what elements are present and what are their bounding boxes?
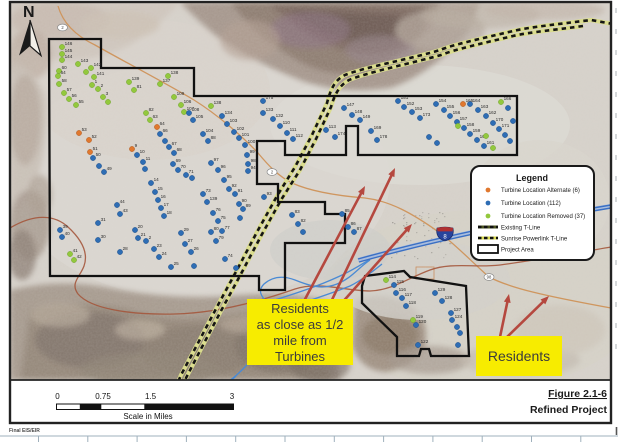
svg-text:69: 69	[176, 158, 182, 163]
svg-text:142: 142	[94, 62, 102, 67]
svg-text:109: 109	[177, 91, 185, 96]
svg-text:122: 122	[421, 339, 429, 344]
svg-text:169: 169	[374, 125, 382, 130]
svg-text:18: 18	[167, 210, 173, 215]
svg-text:23: 23	[157, 243, 163, 248]
svg-text:144: 144	[65, 54, 73, 59]
svg-text:94: 94	[251, 165, 257, 170]
svg-text:87: 87	[357, 226, 363, 231]
svg-text:mile from: mile from	[273, 333, 326, 348]
svg-text:Scale in Miles: Scale in Miles	[123, 412, 172, 421]
svg-text:155: 155	[447, 104, 455, 109]
svg-text:141: 141	[97, 71, 105, 76]
svg-text:15: 15	[158, 186, 164, 191]
svg-text:101: 101	[242, 132, 250, 137]
svg-text:95: 95	[227, 174, 233, 179]
svg-text:148: 148	[355, 109, 363, 114]
svg-text:41: 41	[73, 248, 79, 253]
svg-text:26: 26	[194, 246, 200, 251]
svg-text:73: 73	[206, 188, 212, 193]
svg-text:100: 100	[248, 139, 256, 144]
svg-text:Existing T-Line: Existing T-Line	[501, 226, 541, 232]
svg-text:31: 31	[101, 217, 107, 222]
svg-text:as close as 1/2: as close as 1/2	[257, 317, 344, 332]
svg-text:25: 25	[174, 261, 180, 266]
svg-text:139: 139	[210, 196, 218, 201]
svg-text:51: 51	[93, 146, 99, 151]
svg-text:52: 52	[92, 134, 98, 139]
svg-text:117: 117	[405, 292, 413, 297]
svg-text:63: 63	[153, 114, 159, 119]
svg-text:124: 124	[455, 314, 463, 319]
svg-text:81: 81	[137, 84, 143, 89]
svg-text:161: 161	[487, 140, 495, 145]
svg-text:166: 166	[504, 96, 512, 101]
svg-text:159: 159	[473, 128, 481, 133]
svg-text:118: 118	[409, 300, 417, 305]
svg-text:164: 164	[473, 98, 481, 103]
svg-text:99: 99	[250, 149, 256, 154]
svg-text:115: 115	[397, 279, 405, 284]
svg-text:29: 29	[184, 227, 190, 232]
svg-text:146: 146	[65, 41, 73, 46]
svg-text:175: 175	[266, 95, 274, 100]
svg-text:21: 21	[141, 232, 147, 237]
svg-text:16: 16	[161, 194, 167, 199]
svg-text:83: 83	[295, 209, 301, 214]
svg-text:127: 127	[454, 307, 462, 312]
svg-text:56: 56	[72, 93, 78, 98]
svg-text:N: N	[23, 4, 35, 21]
svg-text:17: 17	[164, 202, 170, 207]
svg-text:9: 9	[135, 143, 138, 148]
svg-text:88: 88	[211, 135, 217, 140]
svg-text:43: 43	[123, 208, 129, 213]
svg-text:158: 158	[467, 122, 475, 127]
svg-text:67: 67	[172, 141, 178, 146]
svg-text:96: 96	[221, 164, 227, 169]
svg-text:10: 10	[140, 149, 146, 154]
svg-text:70: 70	[181, 164, 187, 169]
svg-text:74: 74	[228, 253, 234, 258]
svg-text:82: 82	[301, 218, 307, 223]
svg-text:153: 153	[415, 106, 423, 111]
svg-text:134: 134	[225, 110, 233, 115]
svg-text:149: 149	[363, 114, 371, 119]
svg-text:154: 154	[439, 98, 447, 103]
svg-text:0: 0	[55, 392, 60, 401]
svg-text:Refined Project: Refined Project	[530, 404, 608, 416]
svg-text:28: 28	[123, 246, 129, 251]
svg-text:30: 30	[101, 234, 107, 239]
svg-text:42: 42	[77, 254, 83, 259]
svg-text:171: 171	[502, 123, 510, 128]
svg-text:138: 138	[214, 100, 222, 105]
svg-text:64: 64	[160, 121, 166, 126]
svg-text:50: 50	[96, 152, 102, 157]
svg-text:114: 114	[389, 274, 397, 279]
svg-text:Turbines: Turbines	[275, 349, 326, 364]
svg-text:174: 174	[338, 131, 346, 136]
svg-text:Turbine Location Removed (37): Turbine Location Removed (37)	[501, 214, 585, 220]
svg-text:89: 89	[246, 203, 252, 208]
svg-text:170: 170	[496, 117, 504, 122]
svg-text:85: 85	[345, 208, 351, 213]
svg-text:128: 128	[445, 295, 453, 300]
svg-text:104: 104	[206, 128, 214, 133]
svg-text:162: 162	[489, 110, 497, 115]
svg-text:113: 113	[329, 124, 337, 129]
svg-text:14: 14	[154, 177, 160, 182]
svg-text:93: 93	[267, 191, 273, 196]
svg-text:11: 11	[146, 156, 151, 161]
svg-text:163: 163	[481, 104, 489, 109]
svg-text:147: 147	[347, 102, 355, 107]
svg-text:103: 103	[230, 118, 238, 123]
svg-text:110: 110	[283, 120, 291, 125]
svg-text:106: 106	[184, 99, 192, 104]
svg-text:92: 92	[232, 183, 238, 188]
svg-text:139: 139	[132, 76, 140, 81]
svg-text:Figure 2.1-6: Figure 2.1-6	[548, 388, 607, 400]
svg-text:132: 132	[276, 113, 284, 118]
svg-text:64: 64	[61, 70, 67, 75]
svg-text:49: 49	[107, 166, 113, 171]
svg-text:129: 129	[438, 287, 446, 292]
svg-text:137: 137	[163, 78, 171, 83]
svg-text:1: 1	[95, 79, 98, 84]
svg-text:2: 2	[101, 83, 104, 88]
svg-text:77: 77	[225, 225, 231, 230]
svg-text:40: 40	[65, 231, 71, 236]
svg-text:Residents: Residents	[488, 348, 550, 364]
svg-text:Project Area: Project Area	[501, 248, 534, 254]
svg-text:98: 98	[487, 275, 492, 280]
svg-text:86: 86	[351, 221, 357, 226]
svg-text:112: 112	[296, 133, 304, 138]
svg-text:57: 57	[67, 87, 73, 92]
svg-text:Residents: Residents	[271, 301, 329, 316]
svg-text:55: 55	[79, 99, 85, 104]
svg-text:39: 39	[63, 224, 69, 229]
svg-text:157: 157	[460, 116, 468, 121]
svg-text:82: 82	[149, 107, 155, 112]
svg-text:76: 76	[216, 207, 222, 212]
svg-text:165: 165	[466, 98, 474, 103]
svg-text:152: 152	[407, 101, 415, 106]
svg-text:145: 145	[65, 48, 73, 53]
svg-text:Turbine Location (112): Turbine Location (112)	[501, 201, 561, 207]
svg-text:Final EIS/EIR: Final EIS/EIR	[9, 428, 40, 434]
svg-text:102: 102	[237, 126, 245, 131]
svg-text:111: 111	[290, 127, 297, 132]
svg-text:79: 79	[219, 235, 225, 240]
svg-text:68: 68	[177, 147, 183, 152]
svg-text:91: 91	[238, 188, 244, 193]
svg-text:105: 105	[196, 114, 204, 119]
svg-text:53: 53	[82, 127, 88, 132]
svg-text:3: 3	[230, 392, 235, 401]
svg-text:97: 97	[214, 157, 220, 162]
svg-text:173: 173	[423, 112, 431, 117]
svg-text:151: 151	[401, 95, 409, 100]
svg-text:Sunrise Powerlink T-Line: Sunrise Powerlink T-Line	[501, 237, 568, 243]
svg-text:98: 98	[251, 158, 257, 163]
svg-text:178: 178	[380, 134, 388, 139]
svg-text:143: 143	[81, 58, 89, 63]
svg-text:Turbine Location Alternate (6): Turbine Location Alternate (6)	[501, 188, 580, 194]
svg-text:27: 27	[188, 238, 194, 243]
svg-text:44: 44	[120, 199, 126, 204]
svg-text:138: 138	[171, 70, 179, 75]
svg-text:108: 108	[192, 107, 200, 112]
svg-text:0.75: 0.75	[95, 392, 111, 401]
svg-text:24: 24	[162, 251, 168, 256]
svg-text:1.5: 1.5	[145, 392, 157, 401]
svg-text:75: 75	[221, 215, 227, 220]
svg-text:3: 3	[106, 91, 109, 96]
svg-text:133: 133	[266, 107, 274, 112]
svg-text:20: 20	[138, 224, 144, 229]
svg-text:120: 120	[419, 319, 427, 324]
svg-text:66: 66	[163, 128, 169, 133]
svg-text:Legend: Legend	[516, 173, 548, 183]
svg-text:71: 71	[189, 169, 195, 174]
svg-text:2: 2	[149, 235, 152, 240]
svg-text:156: 156	[453, 110, 461, 115]
svg-text:58: 58	[62, 78, 68, 83]
svg-text:80: 80	[214, 226, 220, 231]
